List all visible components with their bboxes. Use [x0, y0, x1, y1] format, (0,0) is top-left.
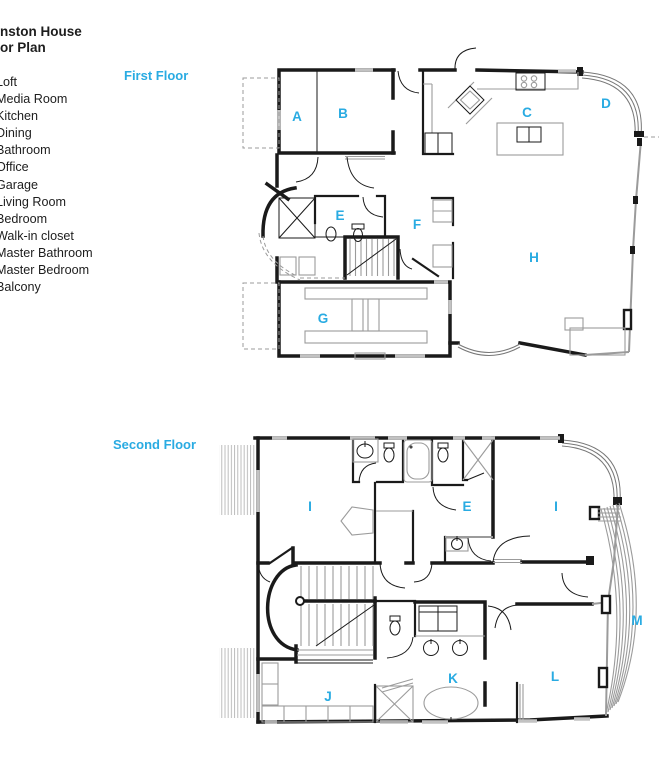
entry-vestibule [279, 198, 315, 275]
laundry [419, 606, 457, 631]
room-label-j: J [324, 689, 332, 704]
master-bath-fixtures [375, 636, 485, 722]
closet-shelving [262, 663, 373, 722]
second-floor-bath-fixtures [353, 439, 493, 482]
room-label-e2: E [462, 499, 471, 514]
fireplace [565, 318, 625, 355]
bay-window [458, 344, 520, 356]
left-balconies [219, 445, 256, 718]
floor-plan-drawing: A B C D E F G H [0, 0, 659, 770]
second-floor-plan: I E I M J K L [219, 434, 643, 722]
room-label-k: K [448, 671, 458, 686]
room-label-b: B [338, 106, 348, 121]
page: { "title": { "line1": "nston House", "li… [0, 0, 659, 770]
first-floor-stairs [347, 239, 396, 276]
first-floor-window-wall [624, 138, 642, 352]
room-label-m: M [631, 613, 642, 628]
second-floor-right-wall [586, 505, 618, 716]
room-label-c: C [522, 105, 532, 120]
kitchen-fixtures [423, 72, 578, 155]
room-label-a: A [292, 109, 302, 124]
toilet-room [390, 616, 400, 635]
room-label-h: H [529, 250, 539, 265]
second-floor-windows [258, 438, 590, 722]
second-floor-stairs [296, 566, 374, 655]
second-floor-glass-wall [558, 434, 622, 505]
first-floor-plan: A B C D E F G H [243, 48, 659, 359]
room-label-g: G [318, 311, 329, 326]
window-sill [493, 560, 522, 563]
office-closets [433, 200, 452, 267]
media-room-shelf [345, 157, 385, 160]
room-label-f: F [413, 217, 421, 232]
room-label-e: E [335, 208, 344, 223]
room-label-d: D [601, 96, 611, 111]
hall-closet [341, 507, 413, 535]
room-label-i-right: I [554, 499, 558, 514]
room-label-l: L [551, 669, 559, 684]
room-label-i-left: I [308, 499, 312, 514]
